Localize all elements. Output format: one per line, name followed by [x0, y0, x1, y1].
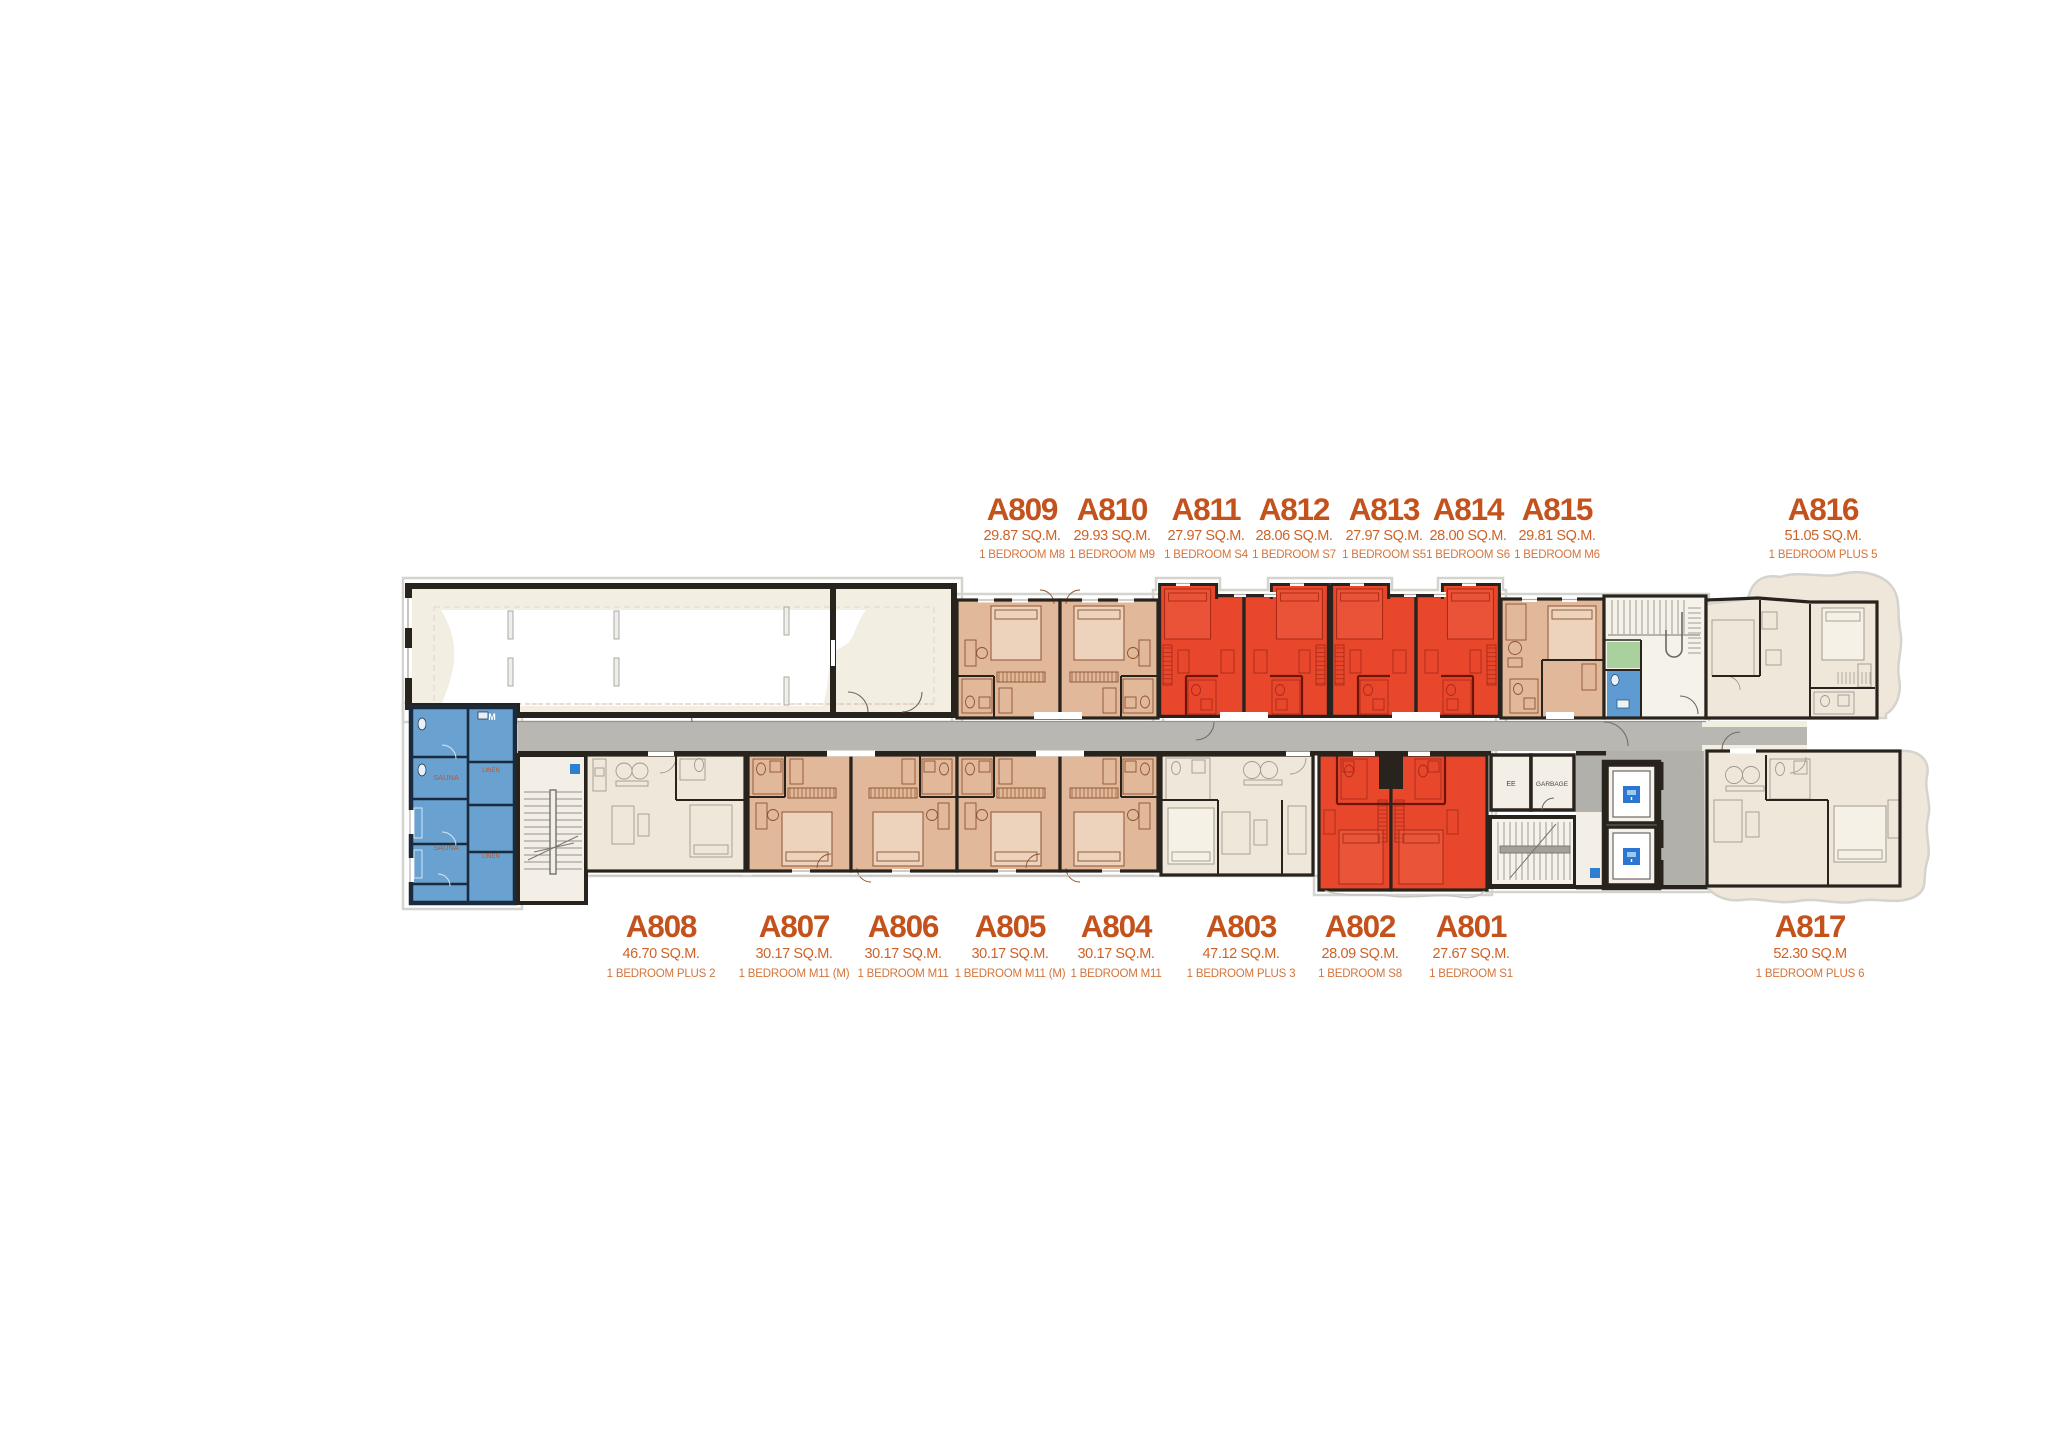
svg-text:30.17 SQ.M.: 30.17 SQ.M. [756, 946, 833, 962]
svg-text:30.17 SQ.M.: 30.17 SQ.M. [865, 946, 942, 962]
svg-text:29.93 SQ.M.: 29.93 SQ.M. [1074, 528, 1151, 544]
svg-text:1 BEDROOM M8: 1 BEDROOM M8 [979, 549, 1065, 561]
svg-text:A807: A807 [759, 908, 830, 944]
svg-text:28.06 SQ.M.: 28.06 SQ.M. [1256, 528, 1333, 544]
svg-text:A811: A811 [1172, 491, 1241, 527]
svg-text:M: M [488, 712, 496, 722]
svg-text:A804: A804 [1081, 908, 1153, 944]
svg-text:1 BEDROOM S4: 1 BEDROOM S4 [1164, 549, 1249, 561]
svg-text:29.81 SQ.M.: 29.81 SQ.M. [1519, 528, 1596, 544]
svg-text:SAUNA: SAUNA [433, 773, 459, 782]
svg-text:51.05 SQ.M.: 51.05 SQ.M. [1785, 528, 1862, 544]
svg-text:A808: A808 [626, 908, 697, 944]
svg-text:A806: A806 [868, 908, 939, 944]
svg-text:1 BEDROOM S1: 1 BEDROOM S1 [1429, 968, 1513, 980]
svg-text:1 BEDROOM S5: 1 BEDROOM S5 [1342, 549, 1426, 561]
svg-text:27.97 SQ.M.: 27.97 SQ.M. [1346, 528, 1423, 544]
svg-text:1 BEDROOM PLUS 3: 1 BEDROOM PLUS 3 [1187, 968, 1296, 980]
svg-text:A805: A805 [975, 908, 1046, 944]
svg-text:A809: A809 [987, 491, 1058, 527]
svg-text:1 BEDROOM PLUS 6: 1 BEDROOM PLUS 6 [1756, 968, 1865, 980]
svg-text:52.30 SQ.M: 52.30 SQ.M [1773, 946, 1846, 962]
svg-text:A803: A803 [1206, 908, 1277, 944]
svg-text:A815: A815 [1522, 491, 1593, 527]
svg-text:1 BEDROOM M6: 1 BEDROOM M6 [1514, 549, 1600, 561]
svg-text:1 BEDROOM M11 (M): 1 BEDROOM M11 (M) [955, 968, 1066, 980]
svg-text:1 BEDROOM S7: 1 BEDROOM S7 [1252, 549, 1336, 561]
svg-text:A802: A802 [1325, 908, 1396, 944]
svg-text:27.97 SQ.M.: 27.97 SQ.M. [1168, 528, 1245, 544]
svg-text:A801: A801 [1436, 908, 1507, 944]
svg-text:1 BEDROOM S6: 1 BEDROOM S6 [1426, 549, 1510, 561]
svg-text:28.09 SQ.M.: 28.09 SQ.M. [1322, 946, 1399, 962]
svg-text:LINEN: LINEN [482, 768, 500, 774]
svg-text:30.17 SQ.M.: 30.17 SQ.M. [1078, 946, 1155, 962]
svg-text:A816: A816 [1788, 491, 1859, 527]
svg-text:27.67 SQ.M.: 27.67 SQ.M. [1433, 946, 1510, 962]
svg-text:1 BEDROOM M11: 1 BEDROOM M11 [857, 968, 948, 980]
svg-text:28.00 SQ.M.: 28.00 SQ.M. [1430, 528, 1507, 544]
svg-text:A817: A817 [1775, 908, 1846, 944]
svg-text:A812: A812 [1259, 491, 1330, 527]
svg-text:A814: A814 [1433, 491, 1505, 527]
svg-text:47.12 SQ.M.: 47.12 SQ.M. [1203, 946, 1280, 962]
svg-text:1 BEDROOM M9: 1 BEDROOM M9 [1069, 549, 1155, 561]
svg-text:GARBAGE: GARBAGE [1536, 781, 1569, 788]
svg-text:1 BEDROOM S8: 1 BEDROOM S8 [1318, 968, 1402, 980]
svg-text:29.87 SQ.M.: 29.87 SQ.M. [984, 528, 1061, 544]
svg-text:46.70 SQ.M.: 46.70 SQ.M. [623, 946, 700, 962]
svg-text:SAUNA: SAUNA [433, 843, 459, 852]
svg-text:30.17 SQ.M.: 30.17 SQ.M. [972, 946, 1049, 962]
svg-text:A810: A810 [1077, 491, 1148, 527]
svg-text:LINEN: LINEN [482, 854, 500, 860]
svg-text:1 BEDROOM PLUS 2: 1 BEDROOM PLUS 2 [607, 968, 716, 980]
svg-text:1 BEDROOM PLUS 5: 1 BEDROOM PLUS 5 [1769, 549, 1878, 561]
svg-text:EE: EE [1506, 781, 1516, 788]
svg-text:1 BEDROOM M11 (M): 1 BEDROOM M11 (M) [739, 968, 850, 980]
svg-text:A813: A813 [1349, 491, 1420, 527]
svg-text:1 BEDROOM M11: 1 BEDROOM M11 [1070, 968, 1161, 980]
